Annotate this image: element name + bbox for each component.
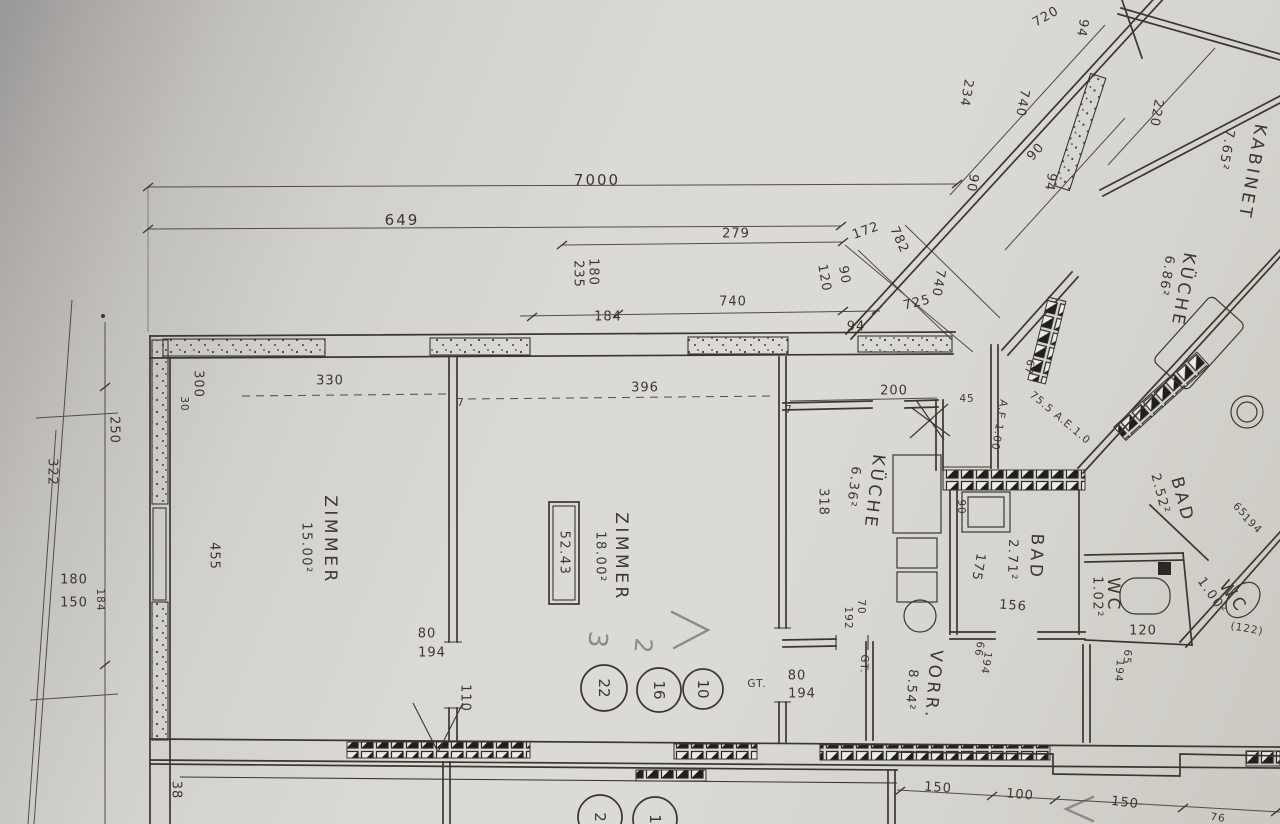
pencil-3: 3 — [581, 630, 612, 650]
room-area: 2.71² — [1004, 539, 1020, 581]
dim-94-c: 94 — [1073, 18, 1091, 39]
dim-156: 156 — [999, 598, 1028, 615]
dim-234: 234 — [956, 78, 976, 108]
left-dimension-chain: 250 322 180 150 184 — [28, 300, 122, 824]
dim-45: 45 — [959, 393, 974, 405]
dim-184: 184 — [594, 310, 622, 325]
room-wc: WC 1.02² — [1090, 576, 1124, 618]
wing-dimension-chain: 172 782 120 90 725 740 90 90 94 234 740 … — [814, 4, 1215, 352]
dim-184-left: 184 — [94, 588, 106, 611]
door-label-gt-2: GT. — [858, 654, 871, 674]
dim-172: 172 — [850, 219, 881, 243]
dim-192: 192 — [842, 606, 854, 629]
room-label: VORR. — [920, 649, 946, 721]
room-label: ZIMMER — [320, 495, 340, 585]
dim-194-e: 194 — [1240, 512, 1265, 537]
room-bad-2: BAD 2.52² — [1147, 472, 1197, 525]
dim-649: 649 — [385, 211, 420, 229]
dim-322: 322 — [45, 458, 60, 486]
washbasin-icon — [962, 492, 1010, 532]
dim-90: 90 — [835, 265, 853, 286]
dim-194-b: 194 — [788, 687, 816, 702]
dim-180: 180 — [586, 258, 601, 286]
room-vorraum: VORR. 8.54² — [902, 649, 946, 721]
dim-90-d: 90 — [955, 499, 967, 514]
dim-150-left: 150 — [60, 596, 88, 611]
dim-180-left: 180 — [60, 573, 88, 588]
dim-7000: 7000 — [574, 171, 620, 189]
dim-235: 235 — [571, 260, 586, 288]
room-area: 1.02² — [1090, 576, 1105, 618]
room-kueche-2: KÜCHE 6.86² — [1155, 251, 1201, 330]
dim-150-a: 150 — [924, 780, 953, 797]
room-label: BAD — [1025, 533, 1047, 581]
dim-110: 110 — [458, 684, 473, 712]
room-label: ZIMMER — [611, 512, 631, 602]
kitchen-counter-icon — [893, 455, 941, 632]
dim-455: 455 — [207, 542, 222, 570]
room-area: 15.00² — [299, 522, 314, 573]
scribble-x-icon — [910, 400, 950, 440]
circled-number: 16 — [650, 680, 668, 699]
dim-740: 740 — [719, 295, 747, 310]
room-label: WC — [1103, 577, 1123, 613]
pencil-chevron-icon — [672, 612, 708, 648]
dim-7-a: 7 — [457, 397, 465, 409]
dim-318: 318 — [816, 488, 831, 516]
dim-279: 279 — [722, 227, 750, 242]
dim-194-d: 194 — [1112, 659, 1126, 683]
dim-740-diag: 740 — [928, 268, 948, 298]
circled-number: 1 — [646, 814, 664, 824]
dim-80-a: 80 — [418, 627, 437, 642]
dim-38: 38 — [169, 781, 184, 800]
dim-194-a: 194 — [418, 646, 446, 661]
lower-unit: 150 100 150 76 38 — [150, 752, 1280, 824]
door-label-gt: GT. — [747, 678, 766, 690]
dim-67: 67 — [1022, 358, 1036, 375]
interior-walls — [444, 345, 1192, 742]
room-label: KABINET — [1234, 122, 1271, 221]
room-area: 18.00² — [593, 531, 608, 582]
dim-330: 330 — [316, 374, 344, 389]
dim-80-b: 80 — [788, 669, 807, 684]
dim-175: 175 — [968, 552, 988, 582]
room-kabinet: KABINET 7.65² — [1215, 122, 1270, 221]
dim-220: 220 — [1146, 98, 1166, 128]
dim-150-b: 150 — [1110, 794, 1139, 812]
floor-plan-drawing: 7000 649 279 235 180 184 740 94 172 782 … — [0, 0, 1280, 824]
room-area: 8.54² — [902, 669, 921, 712]
circled-number: 2 — [591, 812, 609, 822]
circled-number: 22 — [595, 678, 613, 697]
dim-740-c: 740 — [1012, 88, 1032, 118]
dim-720: 720 — [1030, 4, 1062, 31]
label-ae-route: 75.5 A.E.1.0 — [1027, 389, 1093, 447]
dim-76: 76 — [1210, 811, 1227, 824]
room-zimmer-15: ZIMMER 15.00² — [299, 495, 341, 585]
dim-120: 120 — [814, 263, 834, 293]
wing-walls — [846, 0, 1280, 647]
toilet-icon — [1120, 562, 1171, 614]
room-label: BAD — [1166, 475, 1197, 525]
dim-396: 396 — [631, 381, 659, 396]
dim-122: (122) — [1230, 620, 1265, 638]
room-bad: BAD 2.71² — [1004, 533, 1047, 581]
dim-300: 300 — [191, 370, 206, 398]
dim-90-c: 90 — [1024, 140, 1048, 164]
dim-30: 30 — [178, 396, 190, 411]
top-dimension-chain: 7000 649 279 235 180 184 740 94 — [143, 171, 962, 335]
dim-7-b: 7 — [785, 404, 793, 416]
room-zimmer-18: ZIMMER 18.00² — [593, 512, 632, 602]
dim-200: 200 — [880, 384, 908, 399]
room-label: KÜCHE — [859, 453, 890, 531]
dim-100: 100 — [1005, 786, 1034, 803]
pencil-2: 2 — [628, 637, 657, 656]
dim-120-wc: 120 — [1129, 624, 1157, 639]
dim-782: 782 — [886, 224, 911, 256]
circled-number: 10 — [694, 679, 712, 698]
total-area-box: 52.43 — [549, 502, 579, 604]
room-kueche: KÜCHE 6.36² — [843, 453, 891, 531]
room-area: 6.36² — [843, 465, 863, 508]
dim-250: 250 — [107, 416, 122, 444]
dim-70: 70 — [855, 599, 867, 614]
room-wc-2: WC 1.00² — [1194, 575, 1252, 618]
total-area-value: 52.43 — [557, 531, 572, 576]
